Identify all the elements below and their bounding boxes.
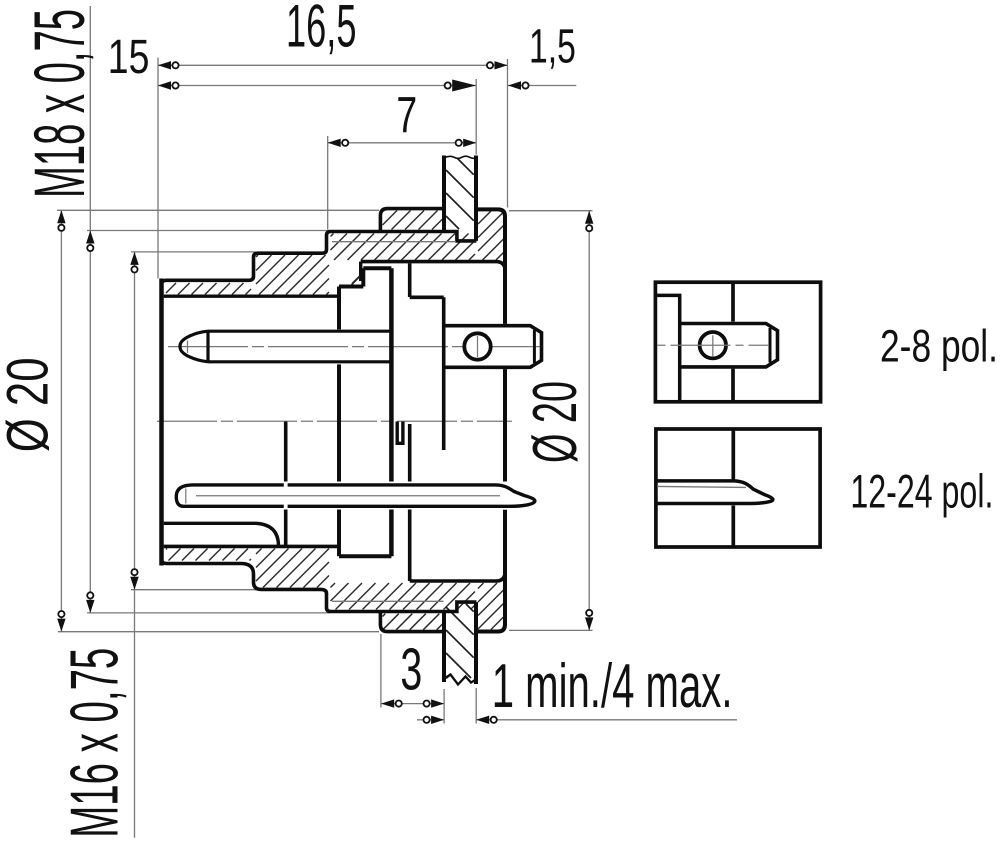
svg-text:2-8 pol.: 2-8 pol.	[880, 321, 998, 372]
svg-text:15: 15	[108, 31, 150, 84]
svg-text:3: 3	[400, 637, 422, 703]
svg-text:M18 x 0,75: M18 x 0,75	[21, 9, 100, 198]
svg-text:M16 x 0,75: M16 x 0,75	[57, 648, 133, 838]
svg-text:12-24 pol.: 12-24 pol.	[850, 465, 993, 518]
svg-text:Ø 20: Ø 20	[521, 381, 590, 463]
svg-text:7: 7	[396, 87, 417, 144]
svg-text:1,5: 1,5	[529, 20, 576, 73]
svg-text:16,5: 16,5	[286, 0, 357, 60]
svg-text:Ø 20: Ø 20	[0, 358, 60, 453]
svg-text:1 min./4 max.: 1 min./4 max.	[492, 652, 733, 721]
